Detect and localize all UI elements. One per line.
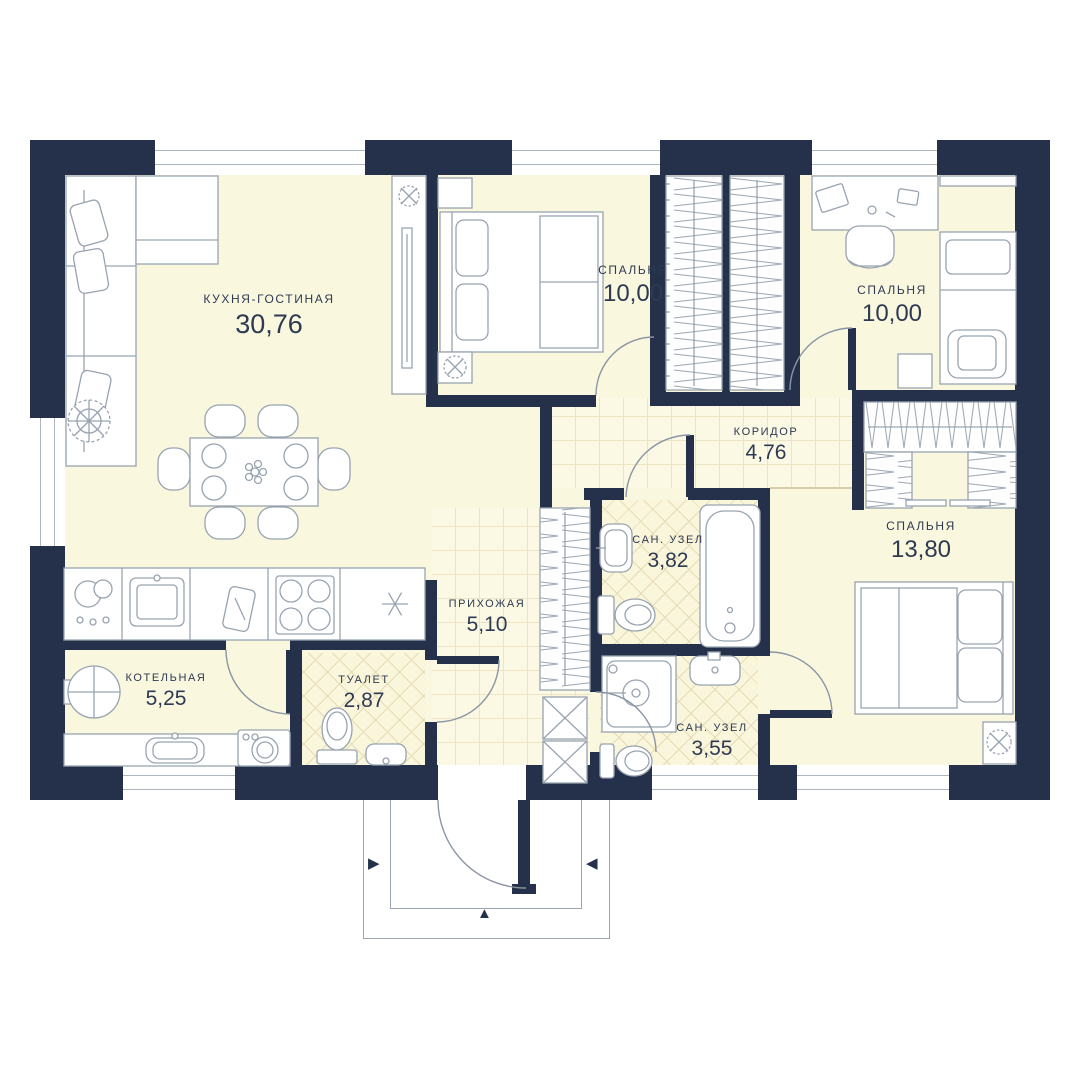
window-bedroom3-bottom [797,765,949,800]
room-label-bedroom3: СПАЛЬНЯ 13,80 [886,519,956,564]
entrance-arrow-left-icon: ◀ [586,856,598,871]
room-area: 5,25 [126,687,207,711]
room-area: 5,10 [449,613,526,637]
window-bedroom1-top [512,140,660,175]
room-area: 10,00 [598,280,668,308]
wall-kitchen-boiler [64,637,226,650]
room-name: САН. УЗЕЛ [676,722,747,734]
entrance-porch-inner [390,800,582,909]
room-area: 30,76 [203,309,334,340]
floor-plan: ▶ ◀ ▲ [0,0,1080,1080]
entrance-door-opening [438,765,526,800]
room-name: СПАЛЬНЯ [857,283,927,297]
room-label-bathroom2: САН. УЗЕЛ 3,55 [676,722,747,761]
room-name: КОТЕЛЬНАЯ [126,672,207,684]
room-label-hallway: ПРИХОЖАЯ 5,10 [449,598,526,637]
wall-hallway-bathrooms-lower [590,752,602,766]
entrance-arrow-right-icon: ▶ [368,856,380,871]
window-living-left [30,418,65,546]
entrance-arrow-up-icon: ▲ [477,906,492,921]
wall-closet-left [852,390,864,510]
room-name: СПАЛЬНЯ [886,519,956,533]
room-label-bedroom2: СПАЛЬНЯ 10,00 [857,283,927,328]
wall-bathroom1-top-left [584,488,624,500]
wall-bathrooms-east-upper [758,488,770,652]
room-area: 13,80 [886,536,956,564]
wall-boiler-toilet [290,650,302,766]
wall-bedroom2-bottom [852,390,1016,402]
wall-bathrooms-east-lower [758,714,770,766]
room-label-kitchen-living: КУХНЯ-ГОСТИНАЯ 30,76 [203,292,334,340]
room-label-corridor: КОРИДОР 4,76 [734,426,799,465]
room-label-bathroom1: САН. УЗЕЛ 3,82 [632,534,703,573]
room-name: КОРИДОР [734,426,799,438]
wall-bathrooms-divider [590,644,770,656]
room-label-toilet: ТУАЛЕТ 2,87 [338,674,389,713]
wall-wardrobe-divider [722,174,730,404]
wall-toilet-hallway-upper [425,580,437,660]
wall-hallway-bathrooms-upper [590,496,602,692]
window-living-top [155,140,365,175]
room-area: 2,87 [338,689,389,713]
room-name: СПАЛЬНЯ [598,263,668,277]
room-name: ПРИХОЖАЯ [449,598,526,610]
wall-wardrobe-bottom [650,392,800,406]
wall-kitchen-corridor-stub [540,395,552,510]
room-area: 4,76 [734,441,799,465]
wall-toilet-top [290,637,437,650]
room-name: КУХНЯ-ГОСТИНАЯ [203,292,334,306]
room-name: САН. УЗЕЛ [632,534,703,546]
window-bathroom2-bottom [652,765,758,800]
window-bedroom2-top [812,140,937,175]
room-name: ТУАЛЕТ [338,674,389,686]
floor-corridor-tiles [552,398,852,488]
room-area: 3,82 [632,549,703,573]
wall-bedroom1-bottom [426,395,596,407]
bedroom3-threshold [770,487,852,489]
wall-living-bedroom1 [426,174,438,407]
room-label-bedroom1: СПАЛЬНЯ 10,00 [598,263,668,308]
room-area: 3,55 [676,737,747,761]
wall-wardrobe-right [784,174,800,404]
room-label-boiler: КОТЕЛЬНАЯ 5,25 [126,672,207,711]
floor-hallway-tiles [432,508,590,766]
wall-outer-right [1015,140,1050,800]
room-area: 10,00 [857,300,927,328]
window-boiler-bottom [123,765,235,800]
wall-toilet-hallway-lower [425,722,437,766]
